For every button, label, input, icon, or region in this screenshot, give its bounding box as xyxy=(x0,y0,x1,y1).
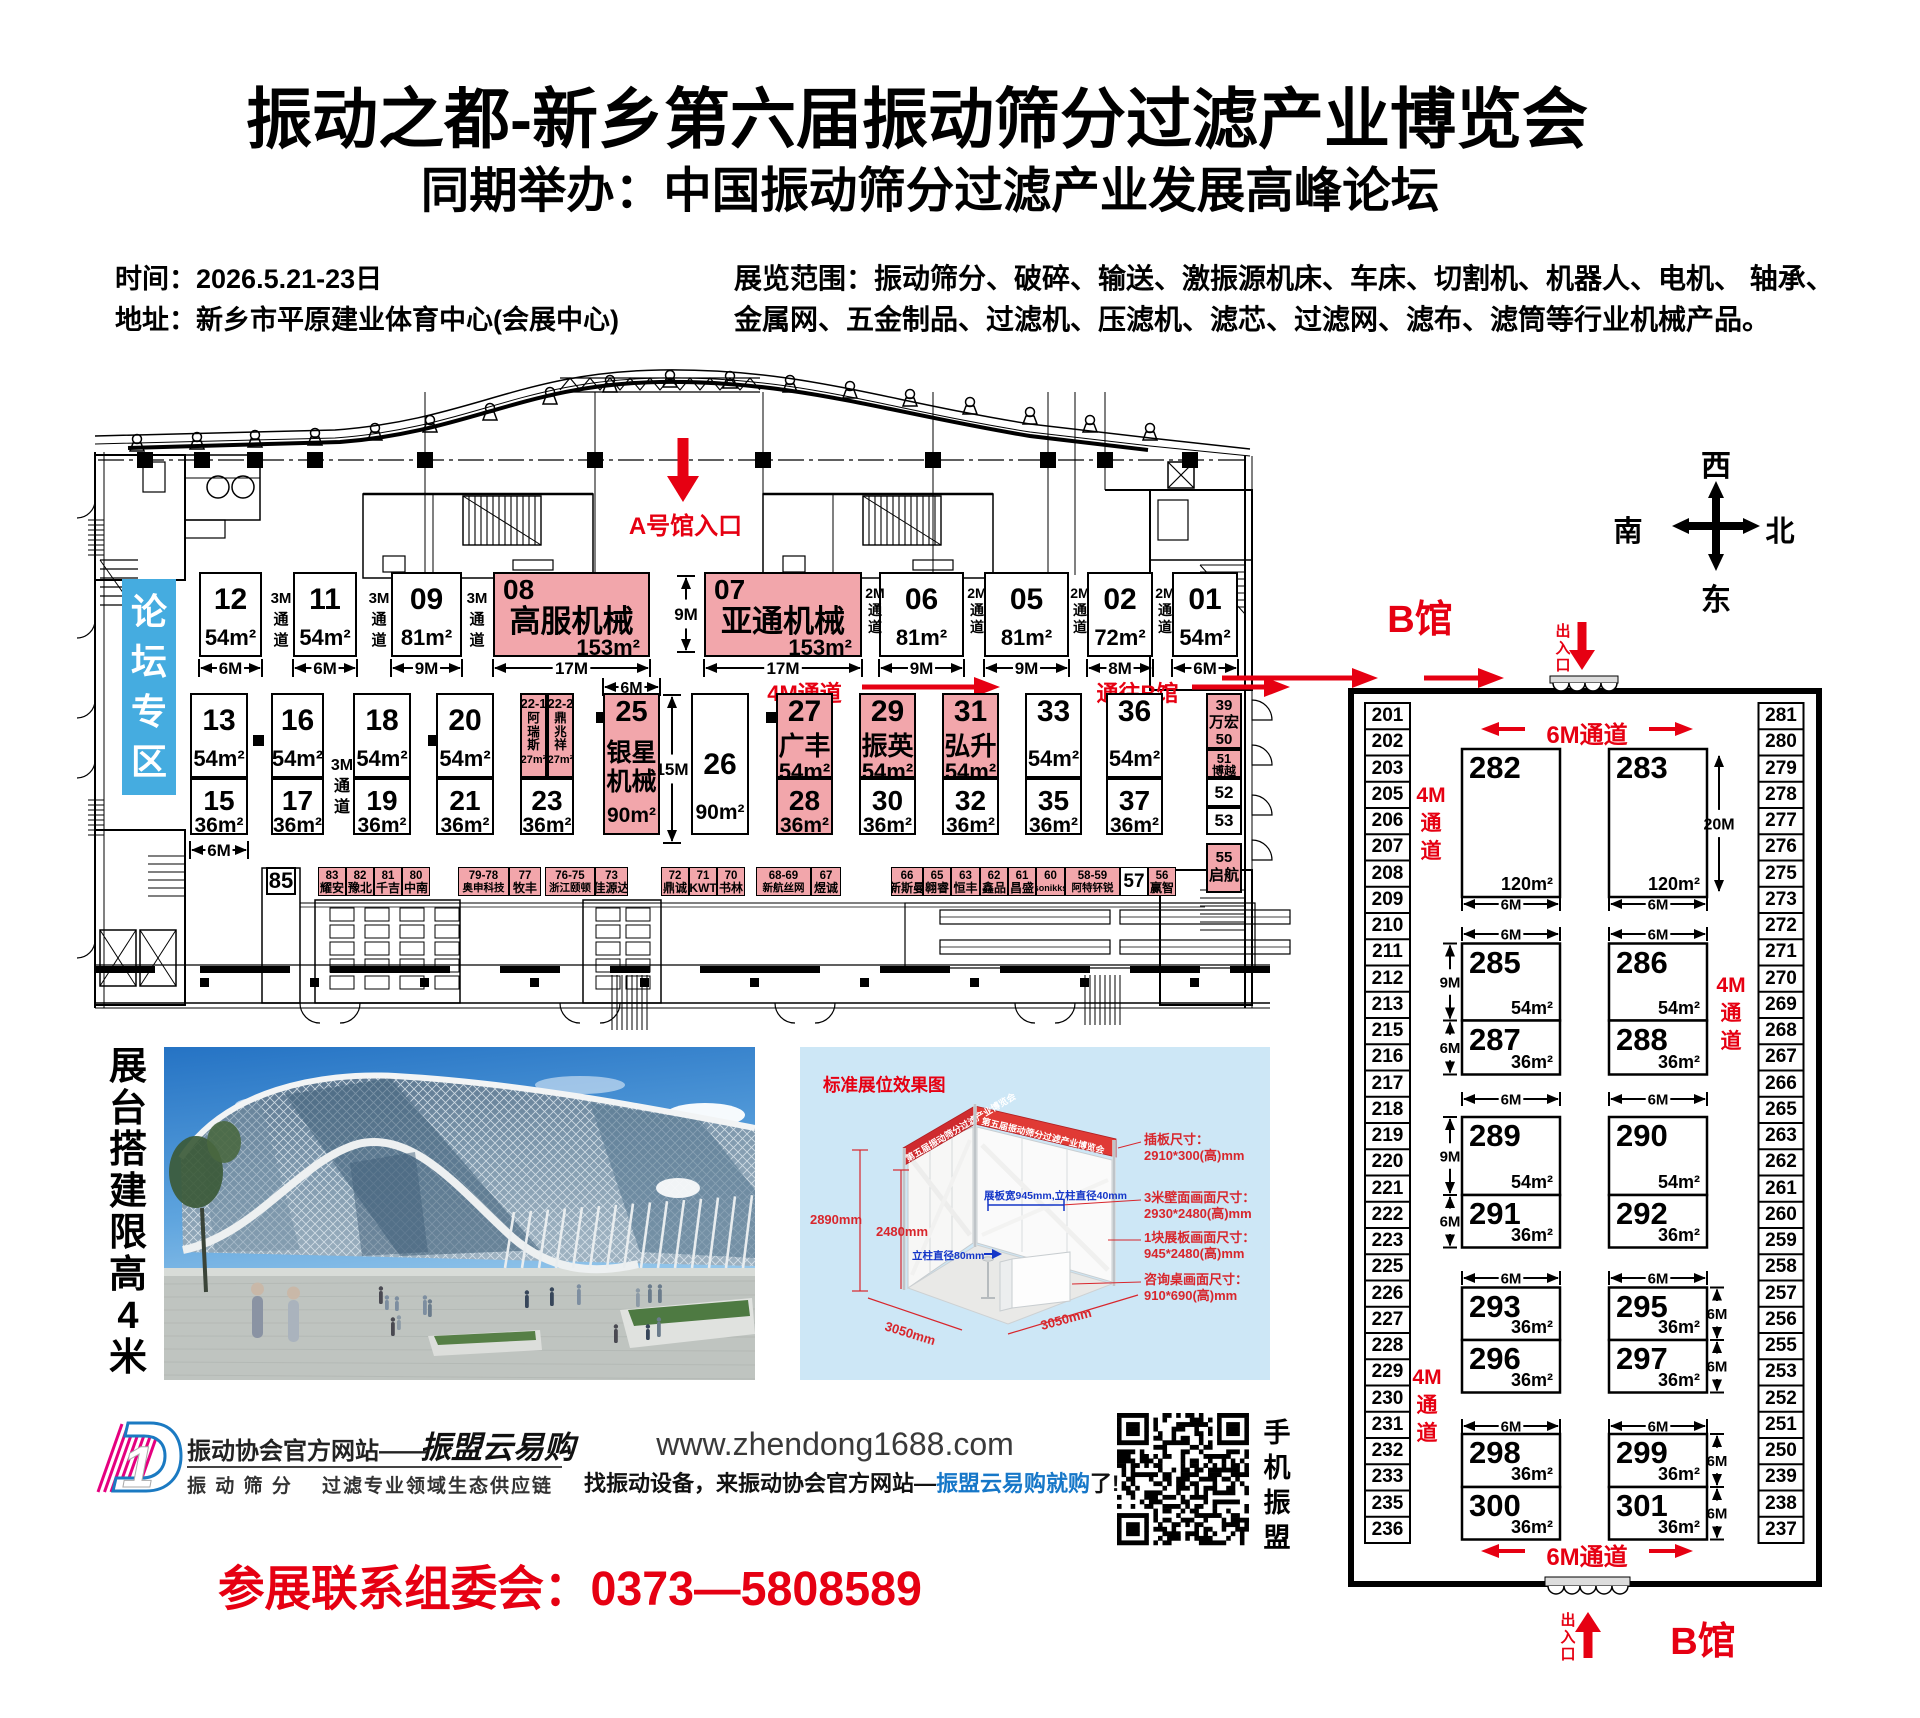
svg-text:6M: 6M xyxy=(1707,1453,1728,1470)
svg-text:17M: 17M xyxy=(555,659,588,678)
svg-text:6M: 6M xyxy=(1648,926,1669,943)
svg-text:6M: 6M xyxy=(1648,1270,1669,1287)
svg-text:9M: 9M xyxy=(1440,974,1461,991)
svg-text:6M: 6M xyxy=(313,659,337,678)
svg-text:20M: 20M xyxy=(1703,816,1734,833)
svg-text:6M: 6M xyxy=(1707,1506,1728,1523)
svg-text:6M: 6M xyxy=(207,841,231,860)
svg-text:9M: 9M xyxy=(1440,1148,1461,1165)
svg-text:6M: 6M xyxy=(1501,926,1522,943)
svg-text:6M: 6M xyxy=(1193,659,1217,678)
svg-text:6M: 6M xyxy=(1648,896,1669,913)
svg-text:15M: 15M xyxy=(655,760,688,779)
svg-text:9M: 9M xyxy=(1015,659,1039,678)
svg-text:6M: 6M xyxy=(1501,1091,1522,1108)
svg-text:6M: 6M xyxy=(1707,1306,1728,1323)
svg-text:1: 1 xyxy=(122,1435,154,1500)
svg-text:6M: 6M xyxy=(1440,1214,1461,1231)
svg-text:9M: 9M xyxy=(674,605,698,624)
svg-text:6M: 6M xyxy=(1501,1270,1522,1287)
svg-text:6M: 6M xyxy=(1440,1040,1461,1057)
svg-text:6M: 6M xyxy=(1501,896,1522,913)
svg-text:9M: 9M xyxy=(415,659,439,678)
svg-text:6M: 6M xyxy=(1648,1091,1669,1108)
svg-text:9M: 9M xyxy=(910,659,934,678)
svg-text:6M: 6M xyxy=(219,659,243,678)
svg-text:6M: 6M xyxy=(1707,1359,1728,1376)
